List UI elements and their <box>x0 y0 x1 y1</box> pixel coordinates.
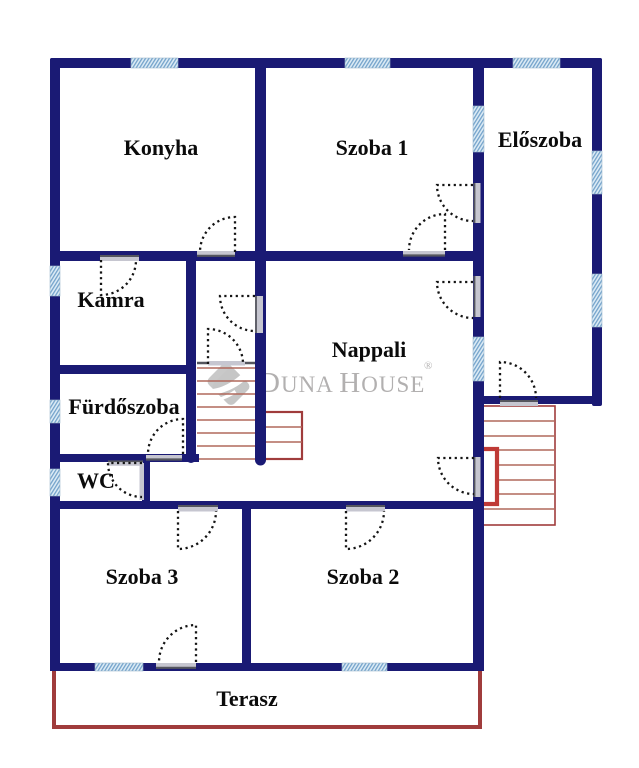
svg-text:Terasz: Terasz <box>216 686 278 711</box>
svg-text:Fürdőszoba: Fürdőszoba <box>68 394 179 419</box>
svg-text:WC: WC <box>77 468 115 493</box>
svg-text:Szoba 2: Szoba 2 <box>327 564 400 589</box>
svg-text:Előszoba: Előszoba <box>498 127 582 152</box>
svg-text:Kamra: Kamra <box>77 287 144 312</box>
svg-text:DUNA HOUSE: DUNA HOUSE <box>259 367 425 399</box>
svg-text:®: ® <box>424 360 432 372</box>
svg-text:Szoba 1: Szoba 1 <box>336 135 409 160</box>
svg-text:Nappali: Nappali <box>332 337 407 362</box>
svg-text:Konyha: Konyha <box>124 135 199 160</box>
svg-text:Szoba 3: Szoba 3 <box>106 564 179 589</box>
